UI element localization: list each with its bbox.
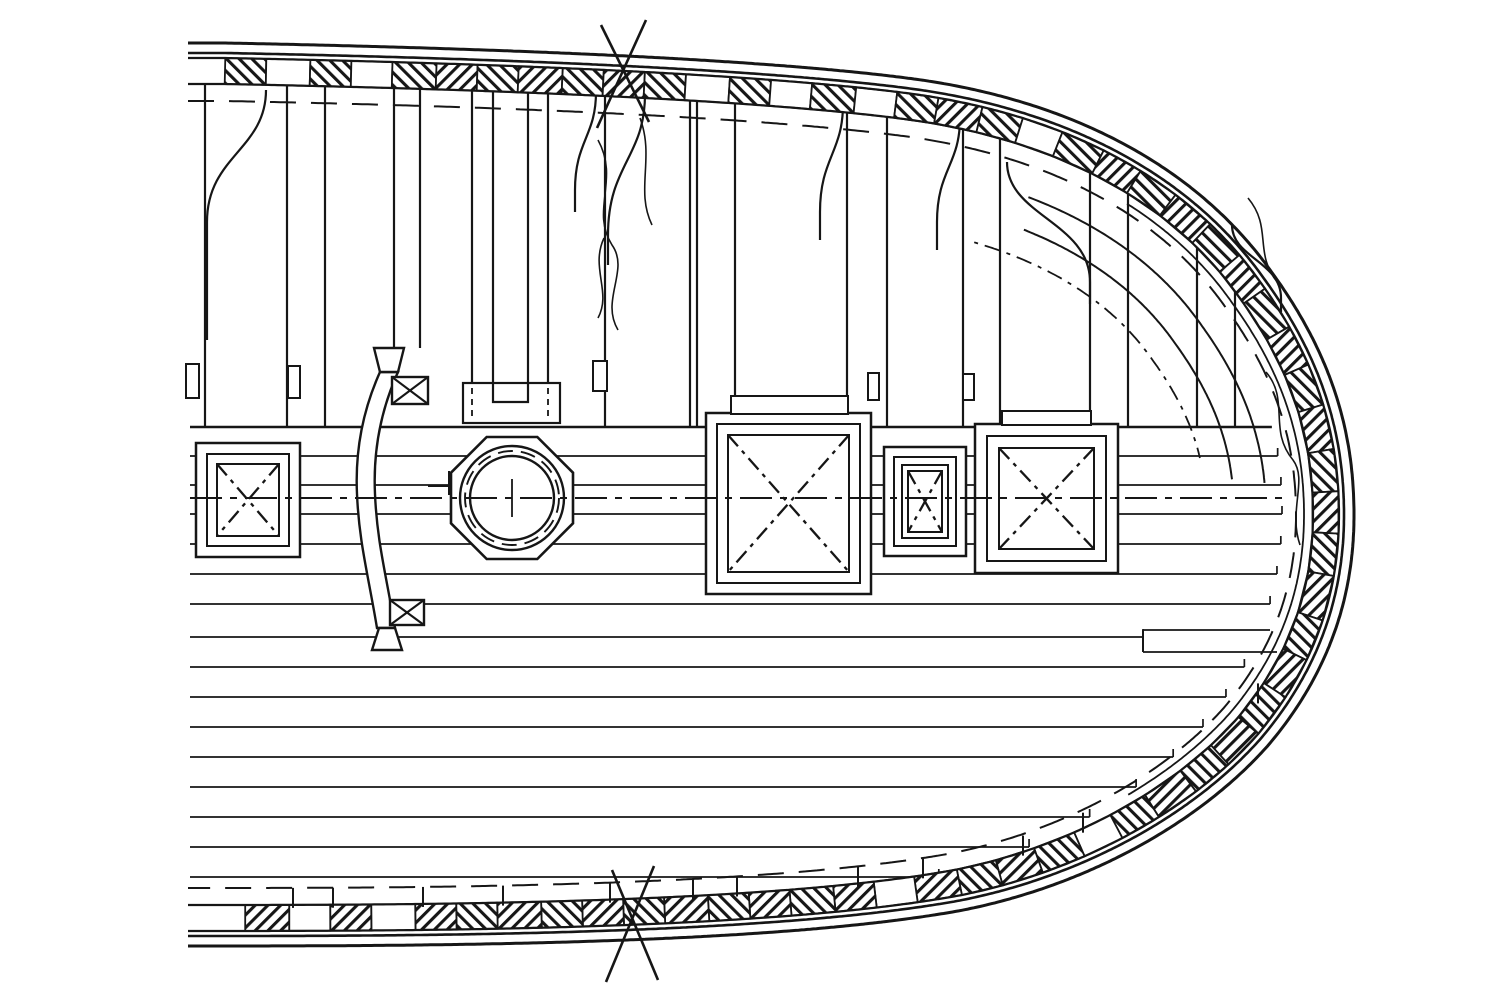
ship-deck-plan xyxy=(0,0,1500,1001)
hatch-mid-small xyxy=(884,447,966,556)
hatch-left-small xyxy=(196,443,300,557)
hatch-main-large xyxy=(706,396,871,594)
hatch-right-medium xyxy=(975,411,1118,573)
deck-plan-drawing xyxy=(0,0,1500,1001)
